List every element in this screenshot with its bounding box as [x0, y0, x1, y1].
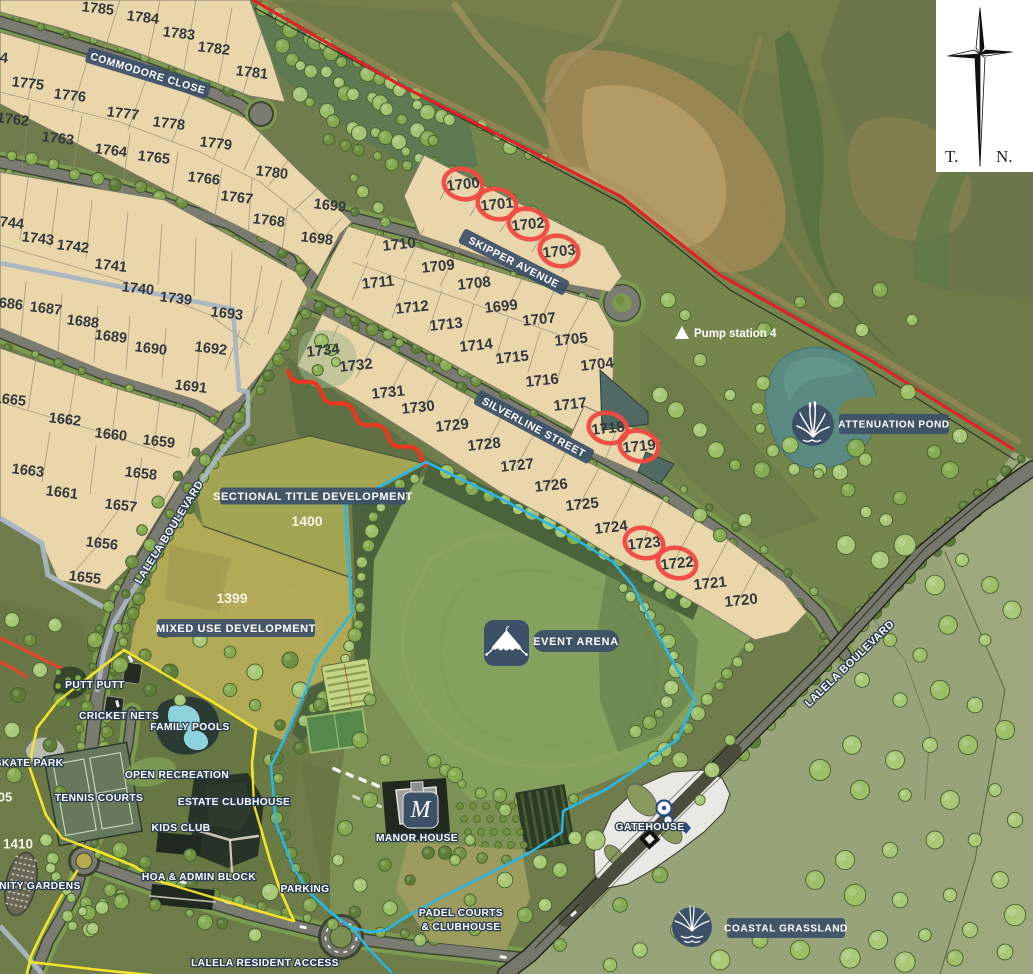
svg-text:UNITY GARDENS: UNITY GARDENS [0, 881, 81, 892]
svg-text:1699: 1699 [484, 296, 519, 316]
svg-text:PADEL COURTS: PADEL COURTS [419, 908, 503, 919]
svg-text:COASTAL GRASSLAND: COASTAL GRASSLAND [724, 924, 848, 935]
svg-text:1732: 1732 [339, 355, 374, 375]
svg-text:KIDS CLUB: KIDS CLUB [151, 823, 210, 834]
svg-text:1727: 1727 [500, 455, 535, 475]
svg-text:1708: 1708 [457, 273, 492, 293]
svg-text:GATEHOUSE: GATEHOUSE [615, 821, 684, 833]
svg-text:1399: 1399 [216, 590, 247, 606]
svg-text:1704: 1704 [580, 354, 616, 374]
svg-text:& CLUBHOUSE: & CLUBHOUSE [421, 922, 500, 933]
svg-text:1762: 1762 [0, 110, 30, 130]
svg-text:T.: T. [945, 147, 958, 166]
svg-text:MANOR HOUSE: MANOR HOUSE [376, 833, 458, 844]
svg-text:1729: 1729 [435, 415, 470, 435]
svg-text:SECTIONAL TITLE DEVELOPMENT: SECTIONAL TITLE DEVELOPMENT [213, 491, 413, 503]
svg-text:1726: 1726 [534, 475, 569, 495]
svg-text:1721: 1721 [693, 573, 728, 593]
svg-text:1725: 1725 [565, 494, 600, 514]
svg-text:Pump station 4: Pump station 4 [694, 328, 777, 340]
svg-text:OPEN RECREATION: OPEN RECREATION [125, 770, 229, 781]
svg-text:1731: 1731 [371, 382, 406, 402]
svg-text:FAMILY POOLS: FAMILY POOLS [150, 722, 230, 733]
svg-text:1686: 1686 [0, 294, 24, 314]
svg-text:MIXED USE DEVELOPMENT: MIXED USE DEVELOPMENT [156, 623, 316, 635]
svg-text:1400: 1400 [291, 513, 322, 529]
svg-text:TENNIS COURTS: TENNIS COURTS [55, 793, 143, 804]
svg-text:1705: 1705 [554, 329, 589, 349]
svg-text:1709: 1709 [421, 256, 456, 276]
svg-text:1724: 1724 [594, 517, 630, 537]
svg-text:SKATE PARK: SKATE PARK [0, 758, 64, 769]
svg-text:1711: 1711 [361, 273, 395, 293]
svg-text:ESTATE CLUBHOUSE: ESTATE CLUBHOUSE [178, 797, 290, 808]
svg-text:05: 05 [0, 790, 12, 805]
svg-text:PUTT PUTT: PUTT PUTT [65, 680, 125, 691]
svg-text:1716: 1716 [525, 370, 560, 390]
svg-text:ATTENUATION POND: ATTENUATION POND [838, 420, 949, 431]
svg-text:EVENT ARENA: EVENT ARENA [533, 636, 619, 648]
svg-text:1710: 1710 [382, 234, 417, 254]
svg-text:1713: 1713 [429, 314, 464, 334]
svg-text:1707: 1707 [522, 309, 557, 329]
svg-text:LALELA RESIDENT ACCESS: LALELA RESIDENT ACCESS [191, 958, 339, 969]
svg-text:PARKING: PARKING [280, 884, 329, 895]
svg-text:M: M [410, 797, 433, 823]
svg-text:1712: 1712 [395, 297, 430, 317]
svg-text:1728: 1728 [467, 434, 502, 454]
svg-text:1734: 1734 [306, 340, 342, 360]
svg-text:CRICKET NETS: CRICKET NETS [79, 711, 159, 722]
svg-text:1717: 1717 [553, 394, 588, 414]
svg-text:1410: 1410 [3, 837, 33, 852]
svg-text:HOA & ADMIN BLOCK: HOA & ADMIN BLOCK [142, 872, 256, 883]
svg-text:N.: N. [996, 147, 1013, 166]
svg-text:1665: 1665 [0, 390, 27, 410]
svg-text:1730: 1730 [401, 397, 436, 417]
svg-text:1720: 1720 [724, 590, 759, 610]
svg-text:1714: 1714 [459, 335, 495, 355]
svg-text:1715: 1715 [495, 347, 530, 367]
